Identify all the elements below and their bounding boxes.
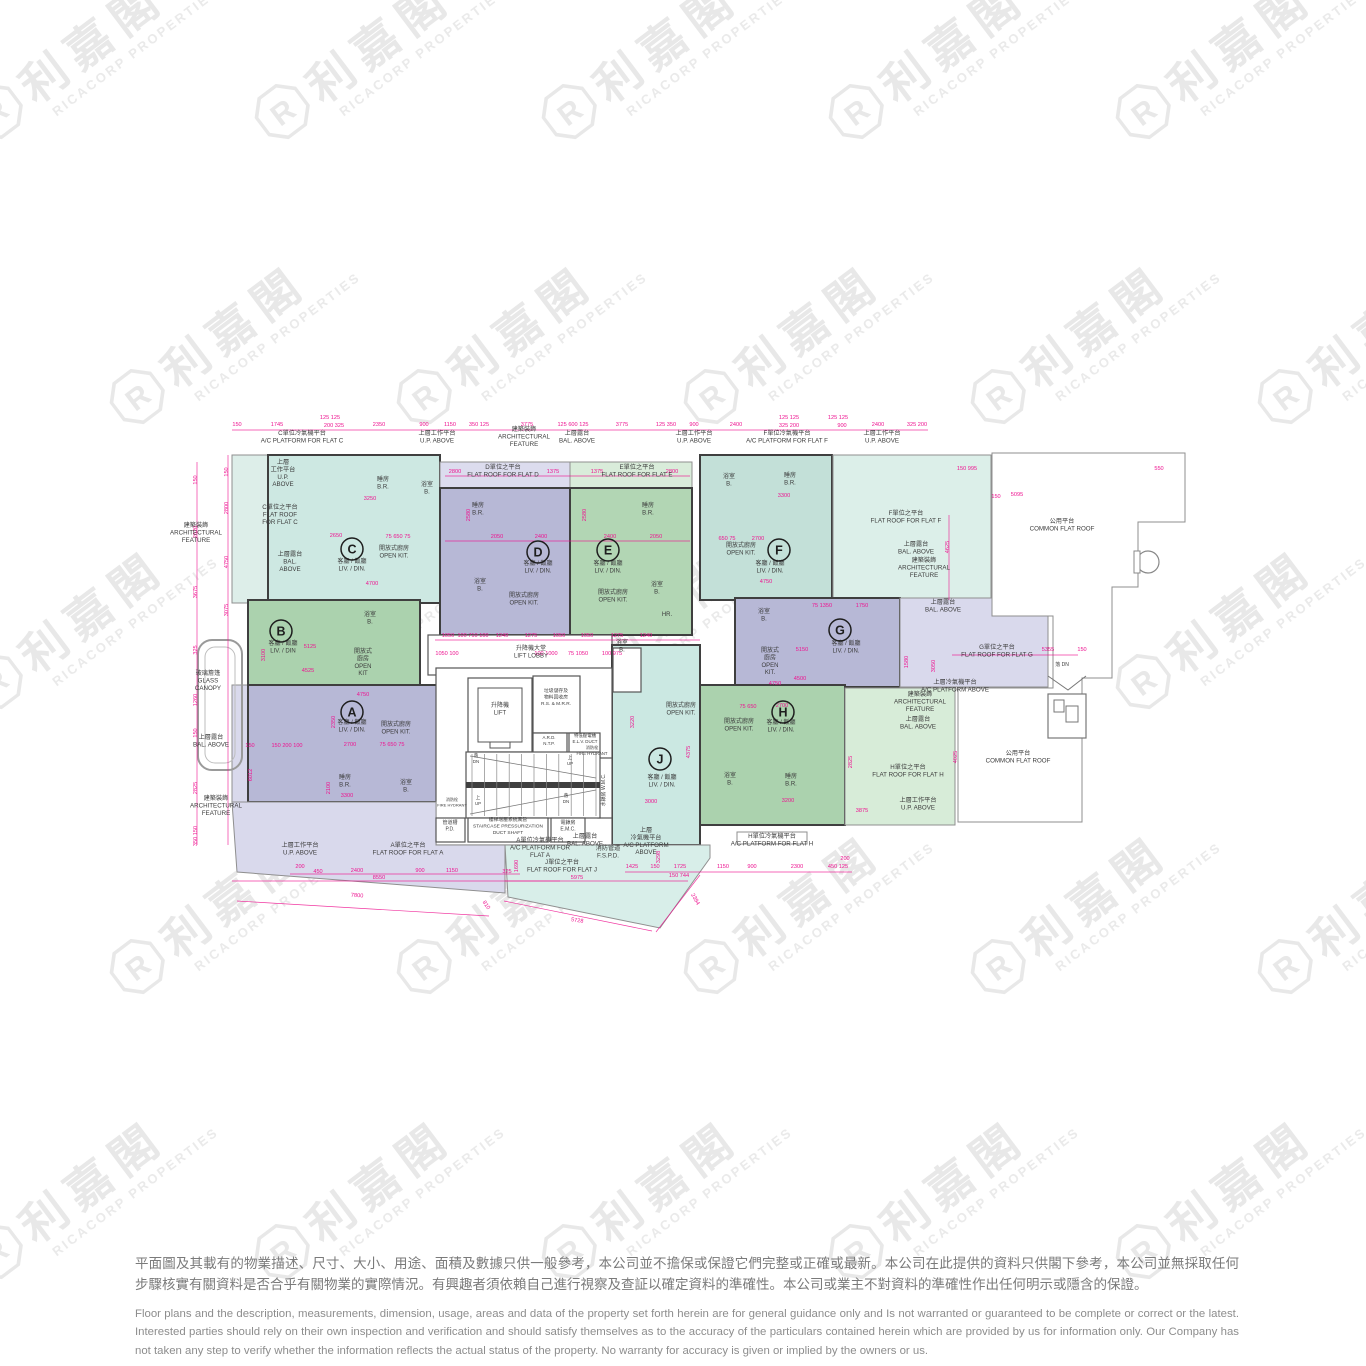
room-label: HR. xyxy=(662,612,673,618)
dimension-label: 2400 xyxy=(730,422,742,428)
dimension-label: 1150 xyxy=(446,868,458,874)
dimension-label: 150 744 xyxy=(669,873,689,879)
dimension-label: 3300 xyxy=(341,793,353,799)
annotation-label: 玻璃簷篷GLASSCANOPY xyxy=(195,669,221,692)
dimension-label: 325 xyxy=(502,869,511,875)
room-label: 睡房B.R. xyxy=(472,501,484,516)
annotation-label: 上層露台BAL. ABOVE xyxy=(193,733,229,748)
dimension-label: 2300 xyxy=(791,864,803,870)
dimension-label: 75 650 75 xyxy=(386,534,411,540)
dimension-label: 4500 xyxy=(794,676,806,682)
dimension-label: 150 200 100 xyxy=(271,743,302,749)
dimension-label: 2350 xyxy=(373,422,385,428)
dimension-label: 5355 xyxy=(1042,647,1054,653)
annotation-label: F單位冷氣機平台A/C PLATFORM FOR FLAT F xyxy=(746,429,828,444)
region-c-roof-strip xyxy=(232,455,268,603)
annotation-label: 建築裝飾ARCHITECTURALFEATURE xyxy=(498,425,550,448)
flat-letter-H: H xyxy=(778,706,787,720)
dimension-label: 6012 xyxy=(248,769,254,781)
dimension-label: 900 xyxy=(837,423,846,429)
dimension-label: 1240 xyxy=(640,633,652,639)
core-label: 落 DN xyxy=(1055,661,1069,668)
dimension-label: 3220 xyxy=(630,716,636,728)
dimension-label: 5975 xyxy=(571,875,583,881)
dimension-label: 1580 xyxy=(904,656,910,668)
annotation-label: 上層工作平台U.P. ABOVE xyxy=(675,429,712,444)
dimension-label: 1690 xyxy=(514,860,520,872)
dimension-label: 8550 xyxy=(373,875,385,881)
dimension-line-8 xyxy=(237,901,489,916)
dimension-label: 4625 xyxy=(945,541,951,553)
floor-plan-drawing: 1501745125 125200 32523509001150350 1253… xyxy=(0,0,1366,1366)
annotation-label: 上層露台BAL. ABOVE xyxy=(559,429,595,444)
dimension-label: 350 125 xyxy=(469,422,489,428)
plan-deco-2 xyxy=(466,782,600,788)
dimension-label: 1050 xyxy=(442,633,454,639)
dimension-label: 650 75 xyxy=(718,536,735,542)
dimension-label: 125 600 125 xyxy=(557,422,588,428)
dimension-label: 3250 xyxy=(364,496,376,502)
plan-deco-8 xyxy=(1134,551,1140,573)
room-label: 客廳 / 飯廳LIV. / DIN. xyxy=(523,559,552,574)
dimension-label: 1275 xyxy=(611,633,623,639)
room-label: 睡房B.R. xyxy=(642,501,654,516)
annotation-label: 上層工作平台U.P. ABOVE xyxy=(281,841,318,856)
dimension-label: 2394 xyxy=(689,893,700,907)
room-label: 客廳 / 飯廳LIV. / DIN. xyxy=(337,718,366,733)
dimension-label: 325 200 xyxy=(907,422,927,428)
region-h-roof xyxy=(845,688,955,825)
dimension-label: 5125 xyxy=(304,644,316,650)
dimension-label: 150 995 xyxy=(957,466,977,472)
dimension-label: 4750 xyxy=(357,692,369,698)
dimension-label: 1150 xyxy=(444,422,456,428)
dimension-label: 900 xyxy=(415,868,424,874)
dimension-label: 125 125 xyxy=(828,415,848,421)
flat-letter-D: D xyxy=(533,546,542,560)
flat-letter-J: J xyxy=(657,753,664,767)
dimension-label: 7800 xyxy=(351,893,364,900)
dimension-label: 3300 xyxy=(778,493,790,499)
flat-letter-E: E xyxy=(604,544,612,558)
dimension-label: 4750 xyxy=(769,681,781,687)
dimension-label: 1150 xyxy=(717,864,729,870)
dimension-label: 2800 xyxy=(449,469,461,475)
room-label: 睡房B.R. xyxy=(377,475,389,490)
room-label: 開放式廚房OPEN KIT. xyxy=(724,717,754,732)
dimension-label: 125 350 xyxy=(656,422,676,428)
dimension-label: 1750 xyxy=(856,603,868,609)
dimension-label: 200 xyxy=(295,864,304,870)
flat-letter-F: F xyxy=(775,544,783,558)
annotation-label: 上層工作平台U.P. ABOVE xyxy=(418,429,455,444)
dimension-label: 150 xyxy=(245,743,254,749)
dimension-label: 900 xyxy=(747,864,756,870)
core-label: 垃圾儲存及物料回收房R.S. & M.R.R. xyxy=(541,687,571,707)
dimension-label: 2800 xyxy=(224,502,230,514)
dimension-label: 5728 xyxy=(571,917,584,925)
dimension-label: 350 150 xyxy=(193,826,199,846)
dimension-label: 1050 xyxy=(553,633,565,639)
room-label: 開放式廚房OPEN KIT. xyxy=(509,591,539,606)
dimension-label: 3100 xyxy=(261,649,267,661)
core-label: 升降機大堂LIFT LOBBY xyxy=(514,644,548,660)
room-label: 開放式廚房OPEN KIT. xyxy=(379,544,409,559)
dimension-label: 3675 xyxy=(193,586,199,598)
dimension-label: 450 125 xyxy=(828,864,848,870)
dimension-label: 4375 xyxy=(686,746,692,758)
dimension-label: 2400 xyxy=(351,868,363,874)
dimension-label: 450 xyxy=(313,869,322,875)
dimension-label: 900 xyxy=(689,422,698,428)
dimension-label: 3298 xyxy=(656,851,662,863)
dimension-label: 75 650 75 xyxy=(380,742,405,748)
dimension-label: 4750 xyxy=(760,579,772,585)
dimension-label: 200 xyxy=(840,856,849,862)
dimension-label: 2580 xyxy=(582,509,588,521)
flat-letter-B: B xyxy=(276,625,285,639)
dimension-label: 125 125 xyxy=(320,415,340,421)
dimension-label: 75 650 xyxy=(739,704,756,710)
region-c-unit xyxy=(268,455,440,603)
dimension-label: 3050 xyxy=(931,660,937,672)
dimension-label: 2050 xyxy=(491,534,503,540)
room-label: 客廳 / 飯廳LIV. / DIN. xyxy=(831,639,860,654)
dimension-label: 2580 xyxy=(466,509,472,521)
dimension-label: 125 125 xyxy=(779,415,799,421)
annotation-label: C單位之平台FLAT ROOFFOR FLAT C xyxy=(262,503,298,526)
room-label: 開放式廚房OPEN KIT. xyxy=(598,588,628,603)
dimension-label: 1050 xyxy=(581,633,593,639)
flat-letter-A: A xyxy=(347,706,356,720)
dimension-label: 75 1350 xyxy=(812,603,832,609)
dimension-label: 4700 xyxy=(366,581,378,587)
dimension-label: 1240 xyxy=(496,633,508,639)
dimension-label: 150 xyxy=(224,467,230,476)
room-label: 開放式廚房OPEN KIT. xyxy=(726,541,756,556)
dimension-label: 3200 xyxy=(782,798,794,804)
dimension-label: 2050 xyxy=(650,534,662,540)
dimension-label: 4525 xyxy=(302,668,314,674)
dimension-label: 2100 xyxy=(326,782,332,794)
dimension-label: 1725 xyxy=(674,864,686,870)
region-e-unit xyxy=(570,488,692,635)
flat-letter-C: C xyxy=(347,543,356,557)
dimension-label: 2700 xyxy=(344,742,356,748)
flat-letter-G: G xyxy=(835,624,845,638)
disclaimer: 平面圖及其載有的物業描述、尺寸、大小、用途、面積及數據只供一般參考，本公司並不擔… xyxy=(135,1254,1239,1360)
dimension-label: 200 325 xyxy=(324,423,344,429)
room-label: 睡房B.R. xyxy=(785,772,797,787)
dimension-label: 5095 xyxy=(1011,492,1023,498)
dimension-label: 325 xyxy=(193,645,199,654)
dimension-label: 1425 xyxy=(626,864,638,870)
dimension-label: 2650 xyxy=(330,533,342,539)
room-label: 睡房B.R. xyxy=(339,773,351,788)
dimension-label: 2825 xyxy=(848,756,854,768)
dimension-label: 150 xyxy=(1077,647,1086,653)
dimension-label: 2350 xyxy=(331,716,337,728)
dimension-label: 2400 xyxy=(872,422,884,428)
dimension-label: 1050 100 xyxy=(435,651,458,657)
dimension-label: 150 xyxy=(650,864,659,870)
core-label: 水錶房 W.M.C. xyxy=(600,774,607,807)
dimension-label: 810 xyxy=(481,900,491,911)
room-label: 開放式廚房OPEN KIT. xyxy=(381,720,411,735)
annotation-label: C單位冷氣機平台A/C PLATFORM FOR FLAT C xyxy=(261,429,344,444)
dimension-label: 3775 xyxy=(616,422,628,428)
dimension-label: 2700 xyxy=(752,536,764,542)
core-label: A.R.D.N.T.P. xyxy=(543,735,556,746)
dimension-label: 550 xyxy=(1154,466,1163,472)
dimension-label: 1745 xyxy=(271,422,283,428)
dimension-label: 5150 xyxy=(796,647,808,653)
annotation-label: 上層工作平台U.P. ABOVE xyxy=(863,429,900,444)
dimension-label: 150 xyxy=(232,422,241,428)
disclaimer-english: Floor plans and the description, measure… xyxy=(135,1305,1239,1360)
dimension-label: 4025 xyxy=(953,751,959,763)
dimension-label: 2825 xyxy=(193,782,199,794)
dimension-label: 3875 xyxy=(856,808,868,814)
dimension-label: 75 1050 xyxy=(568,651,588,657)
dimension-label: 4750 xyxy=(224,556,230,568)
dimension-label: 150 xyxy=(991,494,1000,500)
room-label: 睡房B.R. xyxy=(784,471,796,486)
dimension-label: 3000 xyxy=(645,799,657,805)
dimension-label: 3075 xyxy=(224,604,230,616)
region-h-unit xyxy=(700,685,845,825)
annotation-label: 建築裝飾ARCHITECTURALFEATURE xyxy=(170,521,222,544)
dimension-label: 325 200 xyxy=(779,423,799,429)
dimension-label: 1375 xyxy=(547,469,559,475)
dimension-label: 1260 xyxy=(193,694,199,706)
dimension-label: 1275 xyxy=(525,633,537,639)
annotation-label: 上層工作平台U.P. ABOVE xyxy=(899,796,936,811)
disclaimer-chinese: 平面圖及其載有的物業描述、尺寸、大小、用途、面積及數據只供一般參考，本公司並不擔… xyxy=(135,1254,1239,1296)
dimension-label: 150 xyxy=(193,475,199,484)
room-label: 客廳 / 飯廳LIV. / DIN. xyxy=(647,773,676,788)
dimension-label: 900 xyxy=(419,422,428,428)
room-label: 開放式廚房OPEN KIT. xyxy=(666,701,696,716)
dimension-label: 100 710 100 xyxy=(457,633,488,639)
core-label: 電錶房E.M.C. xyxy=(560,819,575,833)
dimension-label: 2400 xyxy=(535,534,547,540)
